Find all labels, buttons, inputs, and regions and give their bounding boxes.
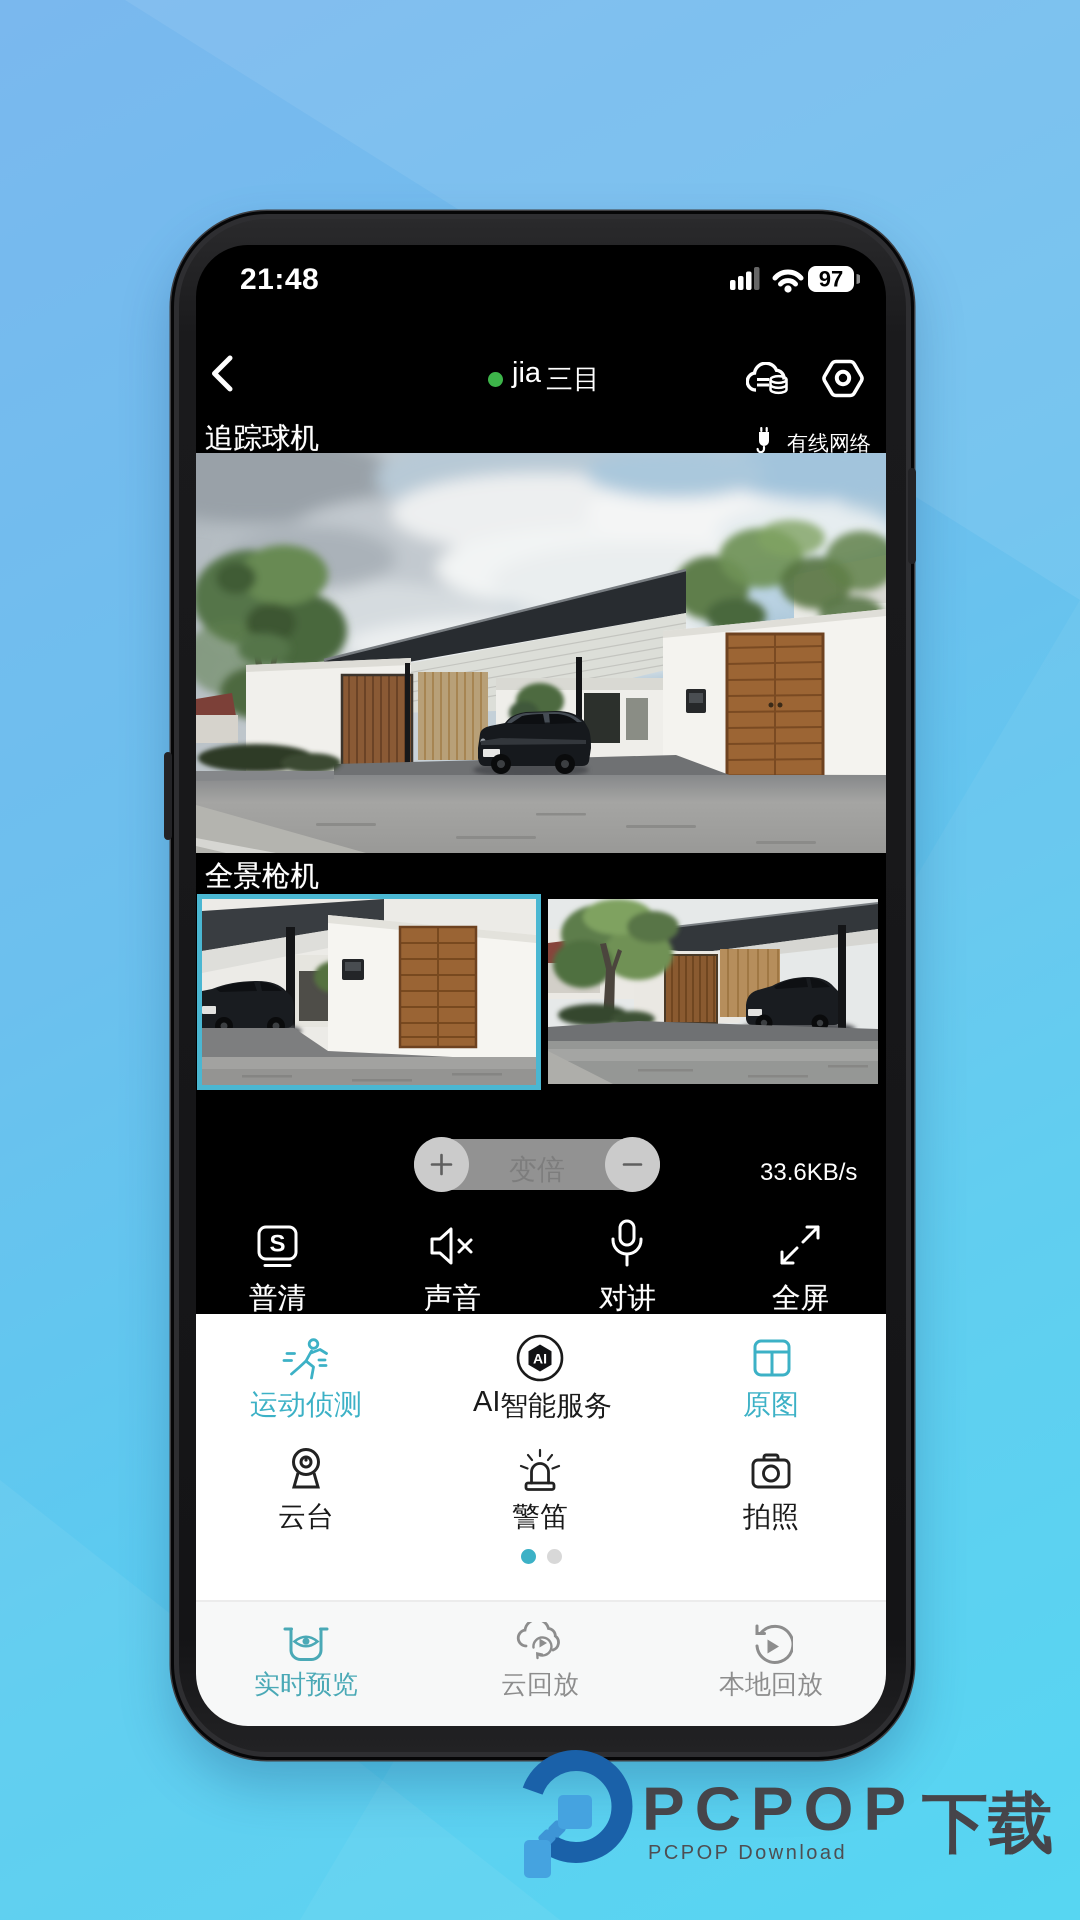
svg-text:97: 97 [819,267,843,292]
svg-text:S: S [269,1231,285,1258]
svg-text:AI: AI [533,1351,547,1367]
